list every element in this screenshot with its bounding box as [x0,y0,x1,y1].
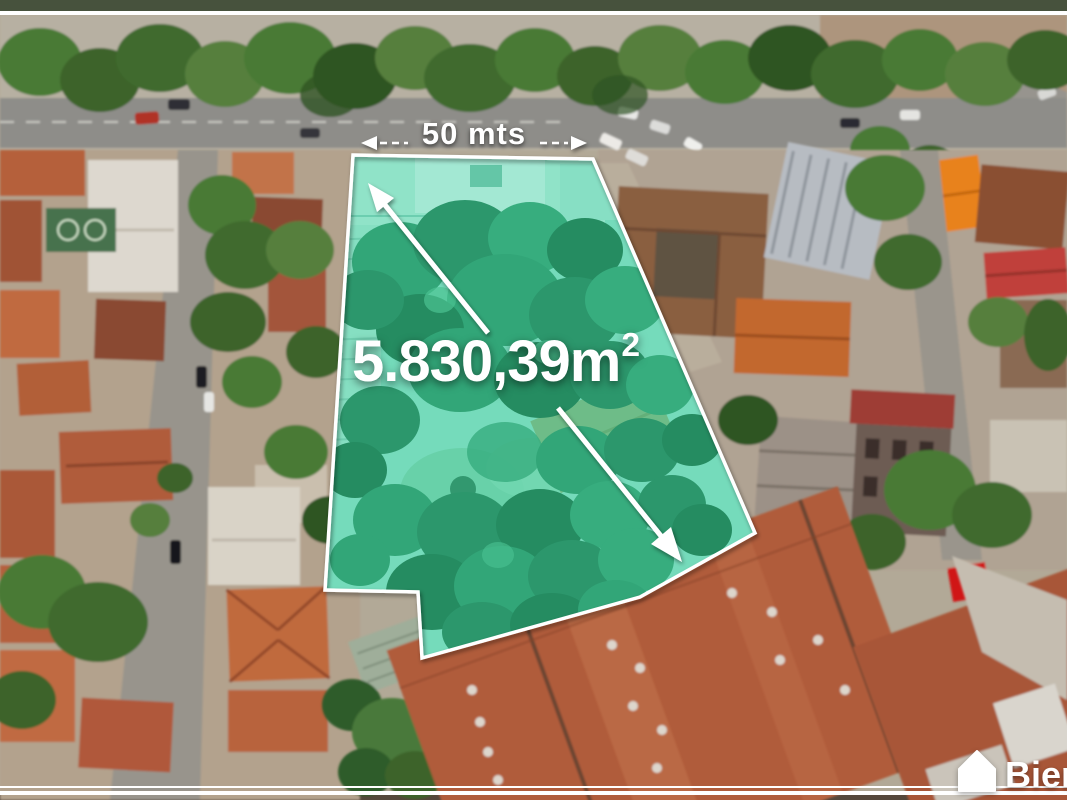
width-measurement-label: 50 mts [404,116,544,152]
frame-line-top [0,11,1067,15]
area-measurement-label: 5.830,39m2 [352,328,638,395]
brand-watermark: Bien [958,744,1067,792]
property-listing-image: 50 mts 5.830,39m2 Bien [0,0,1067,800]
frame-line-bottom-thin [0,786,1067,788]
frame-line-bottom-thick [0,791,1067,795]
brand-text: Bien [1005,758,1067,792]
house-icon [958,750,996,792]
area-value: 5.830,39m [352,329,620,394]
area-exponent: 2 [621,327,639,364]
left-neighborhood [0,150,360,800]
